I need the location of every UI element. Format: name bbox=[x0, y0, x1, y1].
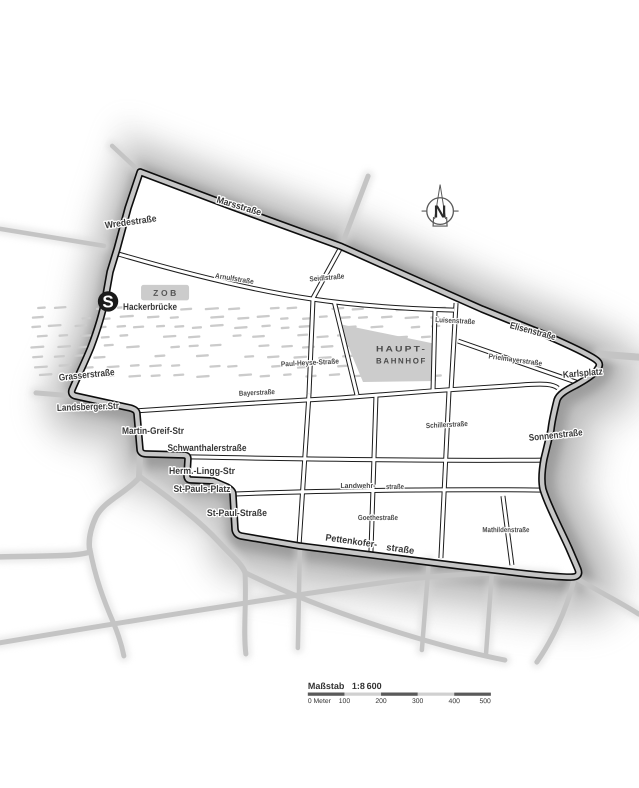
svg-text:S: S bbox=[102, 292, 113, 311]
svg-text:Herm.-Lingg-Str: Herm.-Lingg-Str bbox=[169, 466, 235, 477]
svg-text:Bayerstraße: Bayerstraße bbox=[239, 387, 275, 398]
svg-text:400: 400 bbox=[449, 698, 461, 705]
svg-text:300: 300 bbox=[412, 698, 424, 705]
svg-text:St-Pauls-Platz: St-Pauls-Platz bbox=[173, 484, 230, 495]
svg-text:straße: straße bbox=[386, 482, 404, 491]
svg-text:Landsberger.Str: Landsberger.Str bbox=[57, 401, 120, 414]
svg-text:Hackerbrücke: Hackerbrücke bbox=[123, 302, 177, 313]
svg-text:HAUPT-: HAUPT- bbox=[376, 345, 427, 354]
svg-text:N: N bbox=[434, 202, 447, 222]
svg-text:Mathildenstraße: Mathildenstraße bbox=[482, 525, 529, 534]
svg-text:ZOB: ZOB bbox=[153, 288, 179, 298]
svg-text:200: 200 bbox=[375, 698, 387, 705]
svg-text:500: 500 bbox=[479, 698, 491, 705]
svg-text:BAHNHOF: BAHNHOF bbox=[376, 357, 427, 366]
svg-text:Goethestraße: Goethestraße bbox=[358, 513, 398, 522]
svg-text:100: 100 bbox=[339, 698, 351, 705]
svg-text:0 Meter: 0 Meter bbox=[308, 698, 332, 705]
svg-text:Landwehr-: Landwehr- bbox=[340, 481, 376, 490]
svg-text:St-Paul-Straße: St-Paul-Straße bbox=[207, 508, 267, 519]
svg-text:Martin-Greif-Str: Martin-Greif-Str bbox=[122, 426, 184, 437]
svg-text:Schwanthalerstraße: Schwanthalerstraße bbox=[167, 443, 246, 454]
svg-text:Maßstab 1:8 600: Maßstab 1:8 600 bbox=[308, 681, 382, 691]
